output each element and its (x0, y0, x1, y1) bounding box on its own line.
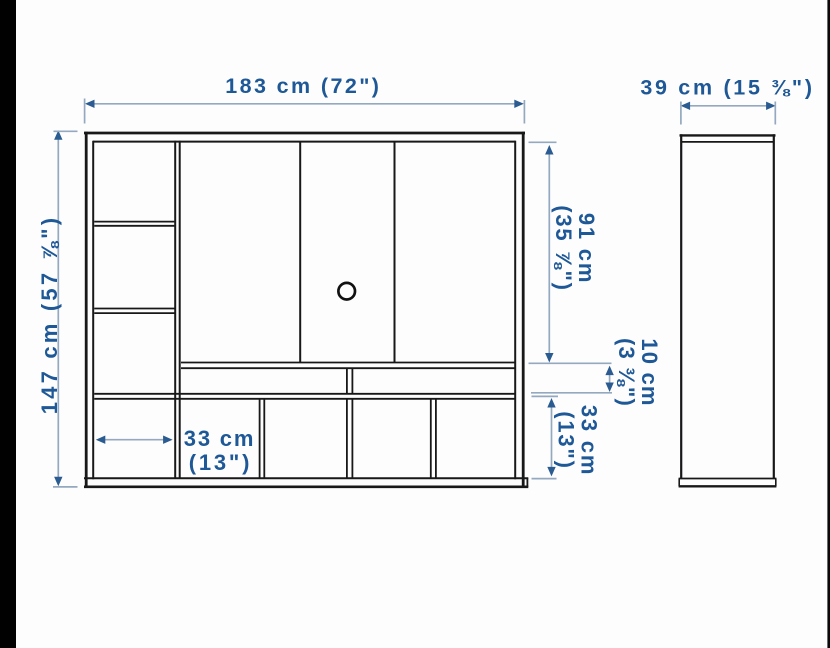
svg-text:10 cm(3 ⅜"): 10 cm(3 ⅜") (614, 338, 662, 407)
svg-text:91 cm(35 ⅞"): 91 cm(35 ⅞") (551, 205, 599, 292)
svg-text:39 cm (15 ⅜"): 39 cm (15 ⅜") (640, 75, 814, 99)
svg-text:33 cm(13"): 33 cm(13") (554, 405, 602, 476)
svg-text:147 cm (57 ⅞"): 147 cm (57 ⅞") (37, 215, 62, 415)
svg-text:(13"): (13") (189, 450, 253, 475)
svg-text:33 cm: 33 cm (184, 426, 255, 451)
svg-text:183 cm (72"): 183 cm (72") (225, 74, 381, 98)
